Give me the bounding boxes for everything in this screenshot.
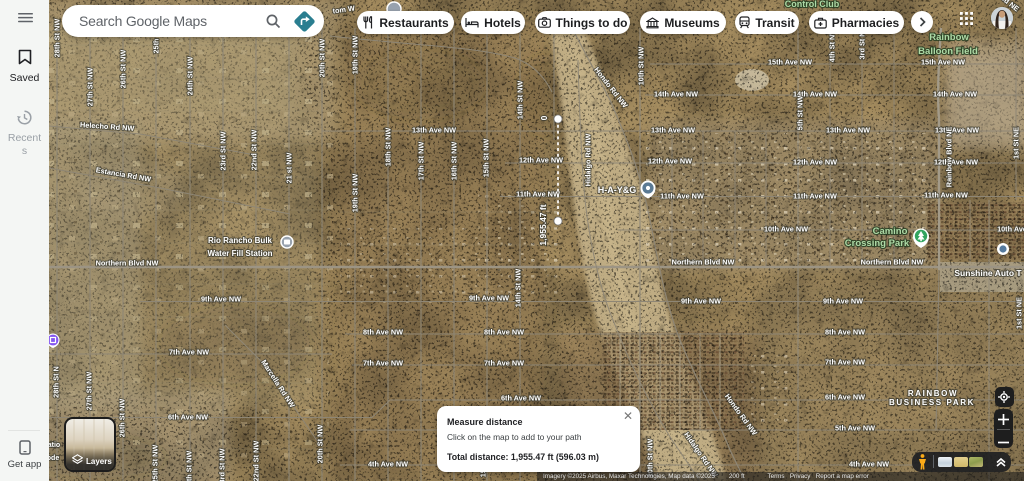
svg-text:Camino: Camino — [873, 226, 908, 237]
svg-text:14th Ave NW: 14th Ave NW — [654, 90, 698, 99]
svg-text:8th Ave NW: 8th Ave NW — [363, 328, 403, 337]
svg-text:23rd St NW: 23rd St NW — [218, 448, 227, 481]
svg-text:7th Ave NW: 7th Ave NW — [363, 359, 403, 368]
svg-text:17th St NW: 17th St NW — [417, 142, 426, 181]
svg-text:H-A-Y&G: H-A-Y&G — [598, 185, 637, 195]
svg-text:26th St NW: 26th St NW — [119, 50, 128, 89]
svg-text:7th Ave NW: 7th Ave NW — [825, 358, 865, 367]
svg-text:25th: 25th — [152, 38, 161, 53]
svg-text:13th Ave NW: 13th Ave NW — [826, 126, 870, 135]
svg-text:26th St NW: 26th St NW — [118, 399, 127, 438]
svg-text:13th Ave NW: 13th Ave NW — [651, 126, 695, 135]
svg-text:28th St NW: 28th St NW — [53, 19, 62, 58]
svg-text:Hidalgo Rd NW: Hidalgo Rd NW — [584, 134, 593, 187]
svg-text:Rainbow: Rainbow — [929, 32, 969, 43]
svg-text:Water Fill Station: Water Fill Station — [207, 249, 272, 258]
svg-text:18th St NW: 18th St NW — [384, 128, 393, 167]
svg-text:10th Ave NW: 10th Ave NW — [764, 225, 808, 234]
svg-text:4th Ave NW: 4th Ave NW — [849, 460, 889, 469]
svg-text:28th St N: 28th St N — [52, 366, 61, 398]
svg-text:13th Ave NW: 13th Ave NW — [935, 126, 979, 135]
svg-text:12th Ave NW: 12th Ave NW — [934, 158, 978, 167]
svg-text:6th Ave NW: 6th Ave NW — [825, 393, 865, 402]
svg-text:6th Ave NW: 6th Ave NW — [501, 394, 541, 403]
svg-text:11th Ave NW: 11th Ave NW — [660, 192, 704, 201]
svg-text:Rio Rancho Bulk: Rio Rancho Bulk — [208, 236, 273, 245]
svg-text:8th Ave NW: 8th Ave NW — [484, 328, 524, 337]
svg-text:7th Ave NW: 7th Ave NW — [169, 348, 209, 357]
svg-text:Northern Blvd NW: Northern Blvd NW — [96, 259, 159, 268]
svg-text:19th St NW: 19th St NW — [351, 174, 360, 213]
svg-text:Rainbow Blvd NE: Rainbow Blvd NE — [945, 127, 954, 188]
svg-text:Control Club: Control Club — [785, 0, 840, 9]
svg-text:16th St NW: 16th St NW — [450, 142, 459, 181]
svg-text:12th Ave NW: 12th Ave NW — [648, 157, 692, 166]
svg-text:19th St NW: 19th St NW — [351, 36, 360, 75]
svg-text:0: 0 — [539, 115, 549, 120]
svg-text:23rd St NW: 23rd St NW — [219, 131, 228, 170]
svg-text:RAINBOW: RAINBOW — [908, 389, 958, 398]
svg-text:14th St NW: 14th St NW — [516, 81, 525, 120]
svg-text:21 st NW: 21 st NW — [285, 152, 294, 183]
svg-text:12th Ave NW: 12th Ave NW — [793, 158, 837, 167]
svg-text:24th St NW: 24th St NW — [185, 451, 194, 481]
svg-text:1st St NE: 1st St NE — [1012, 127, 1021, 159]
svg-text:5th Ave NW: 5th Ave NW — [835, 424, 875, 433]
svg-text:15th Ave NW: 15th Ave NW — [921, 58, 965, 67]
svg-text:9th Ave NW: 9th Ave NW — [681, 297, 721, 306]
svg-text:11th Ave NW: 11th Ave NW — [516, 190, 560, 199]
svg-text:11th Ave NW: 11th Ave NW — [924, 191, 968, 200]
svg-text:13th Ave NW: 13th Ave NW — [412, 126, 456, 135]
svg-text:20th St NW: 20th St NW — [316, 425, 325, 464]
svg-text:BUSINESS PARK: BUSINESS PARK — [889, 398, 975, 407]
svg-text:8th Ave NW: 8th Ave NW — [825, 328, 865, 337]
svg-text:9th Ave NW: 9th Ave NW — [469, 294, 509, 303]
svg-text:Sunshine Auto T: Sunshine Auto T — [954, 268, 1022, 278]
svg-text:27th St NW: 27th St NW — [86, 68, 95, 107]
svg-text:Northern Blvd NW: Northern Blvd NW — [861, 258, 924, 267]
svg-text:6th Ave NW: 6th Ave NW — [168, 413, 208, 422]
svg-text:5th St NW: 5th St NW — [796, 96, 805, 131]
svg-text:27th St NW: 27th St NW — [85, 372, 94, 411]
svg-text:24th St NW: 24th St NW — [186, 57, 195, 96]
svg-text:14th Ave NW: 14th Ave NW — [933, 90, 977, 99]
svg-text:22nd St NW: 22nd St NW — [252, 441, 261, 481]
svg-text:22nd St NW: 22nd St NW — [250, 130, 259, 171]
svg-text:4th Ave NW: 4th Ave NW — [368, 460, 408, 469]
svg-text:10th St NW: 10th St NW — [637, 47, 646, 86]
svg-text:Northern Blvd NW: Northern Blvd NW — [672, 258, 735, 267]
svg-text:Crossing Park: Crossing Park — [845, 238, 910, 249]
svg-text:atio: atio — [48, 442, 60, 449]
svg-text:11th Ave NW: 11th Ave NW — [793, 192, 837, 201]
svg-text:7th Ave NW: 7th Ave NW — [484, 359, 524, 368]
svg-text:1st St NE: 1st St NE — [1015, 297, 1024, 329]
svg-text:14th St NW: 14th St NW — [514, 269, 523, 308]
svg-text:10th Ave: 10th Ave — [997, 225, 1024, 234]
svg-text:9th Ave NW: 9th Ave NW — [201, 295, 241, 304]
svg-text:25th St NW: 25th St NW — [151, 445, 160, 481]
svg-text:1,955.47 ft: 1,955.47 ft — [538, 204, 548, 245]
svg-text:15th St NW: 15th St NW — [482, 139, 491, 178]
svg-text:Balloon Field: Balloon Field — [918, 46, 978, 57]
svg-text:9th Ave NW: 9th Ave NW — [823, 297, 863, 306]
svg-text:12th Ave NW: 12th Ave NW — [519, 156, 563, 165]
svg-text:20th St NW: 20th St NW — [318, 39, 327, 78]
svg-text:15th Ave NW: 15th Ave NW — [768, 58, 812, 67]
